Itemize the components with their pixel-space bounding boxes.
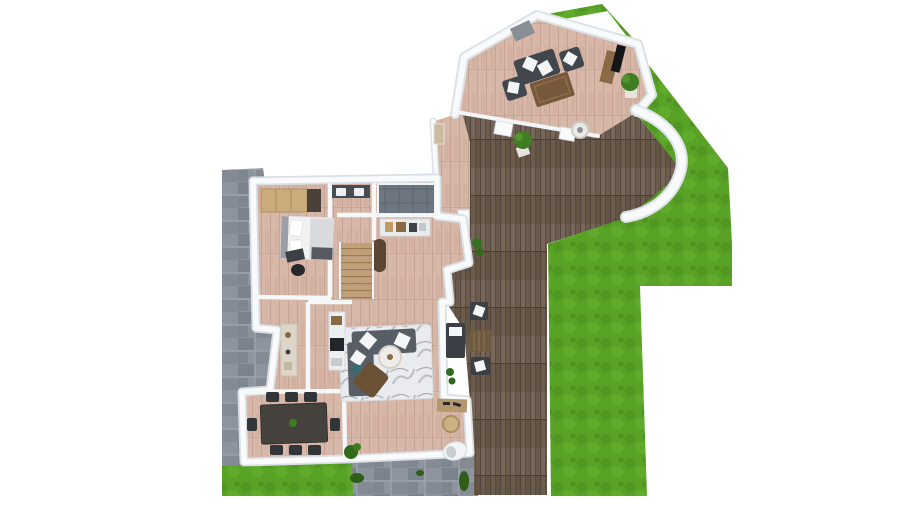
fire-pit-center: [577, 127, 583, 133]
woven-desk-chair: [443, 416, 459, 432]
paving-hedge: [416, 470, 424, 476]
desk-item: [443, 402, 450, 405]
stair-nosing-7: [341, 290, 372, 292]
kitchenette-item: [331, 316, 342, 325]
deck-shrub: [476, 248, 484, 256]
stair-nosing-3: [341, 262, 372, 264]
kitchen-counter-item: [409, 223, 417, 232]
kitchen-runner-rug: [373, 239, 386, 272]
dining-chair-1: [266, 392, 279, 402]
kitchenette-cooktop: [330, 338, 344, 351]
bed-pillow: [289, 219, 303, 237]
paving-hedge: [459, 471, 469, 491]
dining-centerpiece: [289, 419, 297, 427]
floor-plan-stage: [0, 0, 900, 506]
dining-chair-1: [270, 445, 283, 455]
kitchenette-sink: [331, 358, 342, 366]
deck-plant: [449, 378, 456, 385]
wardrobe: [261, 189, 307, 212]
dining-chair: [247, 418, 257, 431]
wall-dining-top: [242, 391, 344, 392]
lawn-bottom-left: [222, 461, 353, 496]
walkway-bench: [434, 124, 444, 144]
kitchen-counter-item: [385, 222, 393, 232]
stair-nosing-1: [341, 248, 372, 250]
paving-hedge: [350, 473, 364, 483]
stair-nosing-8: [341, 297, 372, 299]
kitchen-counter-item: [419, 223, 426, 231]
hall-sink: [336, 188, 346, 196]
kitchen-counter-item: [396, 222, 406, 232]
corridor-counter-item: [284, 362, 292, 370]
study-desk: [437, 398, 467, 412]
corridor-counter-item: [286, 350, 291, 355]
stair-nosing-6: [341, 283, 372, 285]
hall-sink: [354, 188, 364, 196]
dining-chair-3: [304, 392, 317, 402]
wardrobe-dark-cabinet: [307, 189, 321, 212]
stair-nosing-5: [341, 276, 372, 278]
deck-side-table-slat-3: [483, 331, 485, 351]
indoor-bush: [353, 443, 361, 451]
coffee-table-decor: [387, 354, 393, 360]
courtyard-tiled-floor: [378, 184, 435, 214]
deck-shrub: [472, 238, 482, 248]
deck-side-table-slat-2: [478, 331, 480, 351]
wall-bedroom-bottom: [254, 297, 331, 298]
stair-nosing-2: [341, 255, 372, 257]
dining-chair: [330, 418, 340, 431]
dining-chair-2: [285, 392, 298, 402]
terrace-pillar: [494, 121, 513, 137]
walkway-plant-highlight: [515, 133, 523, 141]
deck-side-table-slat-1: [473, 331, 475, 351]
dining-chair-3: [308, 445, 321, 455]
terrace-plant-highlight: [622, 75, 630, 83]
terrace-armchair-pillow: [507, 81, 520, 94]
bed-throw: [311, 247, 332, 260]
bedroom-chair: [291, 264, 305, 276]
floor-plan-rendering: [0, 0, 900, 506]
deck-lounger-pillow: [449, 327, 462, 336]
corridor-counter-item: [285, 332, 291, 338]
dining-chair-2: [289, 445, 302, 455]
stair-nosing-4: [341, 269, 372, 271]
deck-plant: [446, 368, 454, 376]
